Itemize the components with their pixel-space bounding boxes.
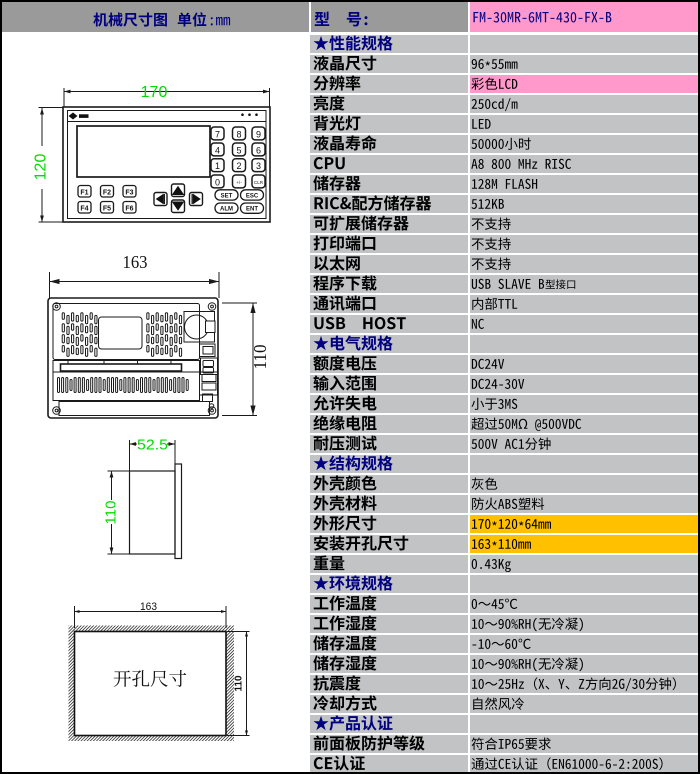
svg-text:163: 163: [123, 252, 148, 272]
svg-text:120: 120: [33, 154, 50, 181]
svg-text:110: 110: [234, 675, 245, 691]
svg-text:F2: F2: [103, 189, 111, 196]
svg-text:110: 110: [250, 345, 270, 370]
svg-text:110: 110: [104, 501, 120, 525]
svg-text:7: 7: [215, 129, 220, 139]
svg-text:52.5: 52.5: [137, 438, 168, 454]
svg-text:0: 0: [215, 177, 220, 187]
svg-text:9: 9: [256, 129, 261, 139]
svg-text:8: 8: [236, 129, 241, 139]
svg-text:6: 6: [256, 145, 261, 155]
svg-text:2: 2: [236, 161, 241, 171]
svg-text:1: 1: [215, 161, 220, 171]
svg-text:ALM: ALM: [220, 207, 233, 213]
svg-text:+/-: +/-: [236, 180, 242, 185]
svg-text:SET: SET: [221, 194, 233, 200]
svg-text:170: 170: [141, 84, 168, 101]
svg-text:CLR: CLR: [254, 180, 264, 185]
svg-text:5: 5: [236, 145, 241, 155]
svg-text:F1: F1: [80, 189, 88, 196]
svg-text:ENT: ENT: [246, 207, 258, 213]
svg-text:F6: F6: [125, 205, 133, 212]
svg-text:ESC: ESC: [246, 194, 259, 200]
svg-text:F5: F5: [103, 205, 111, 212]
svg-text:F3: F3: [125, 189, 133, 196]
svg-text:4: 4: [215, 145, 220, 155]
svg-text:163: 163: [140, 601, 157, 613]
svg-text:3: 3: [256, 161, 261, 171]
svg-text:F4: F4: [80, 205, 88, 212]
